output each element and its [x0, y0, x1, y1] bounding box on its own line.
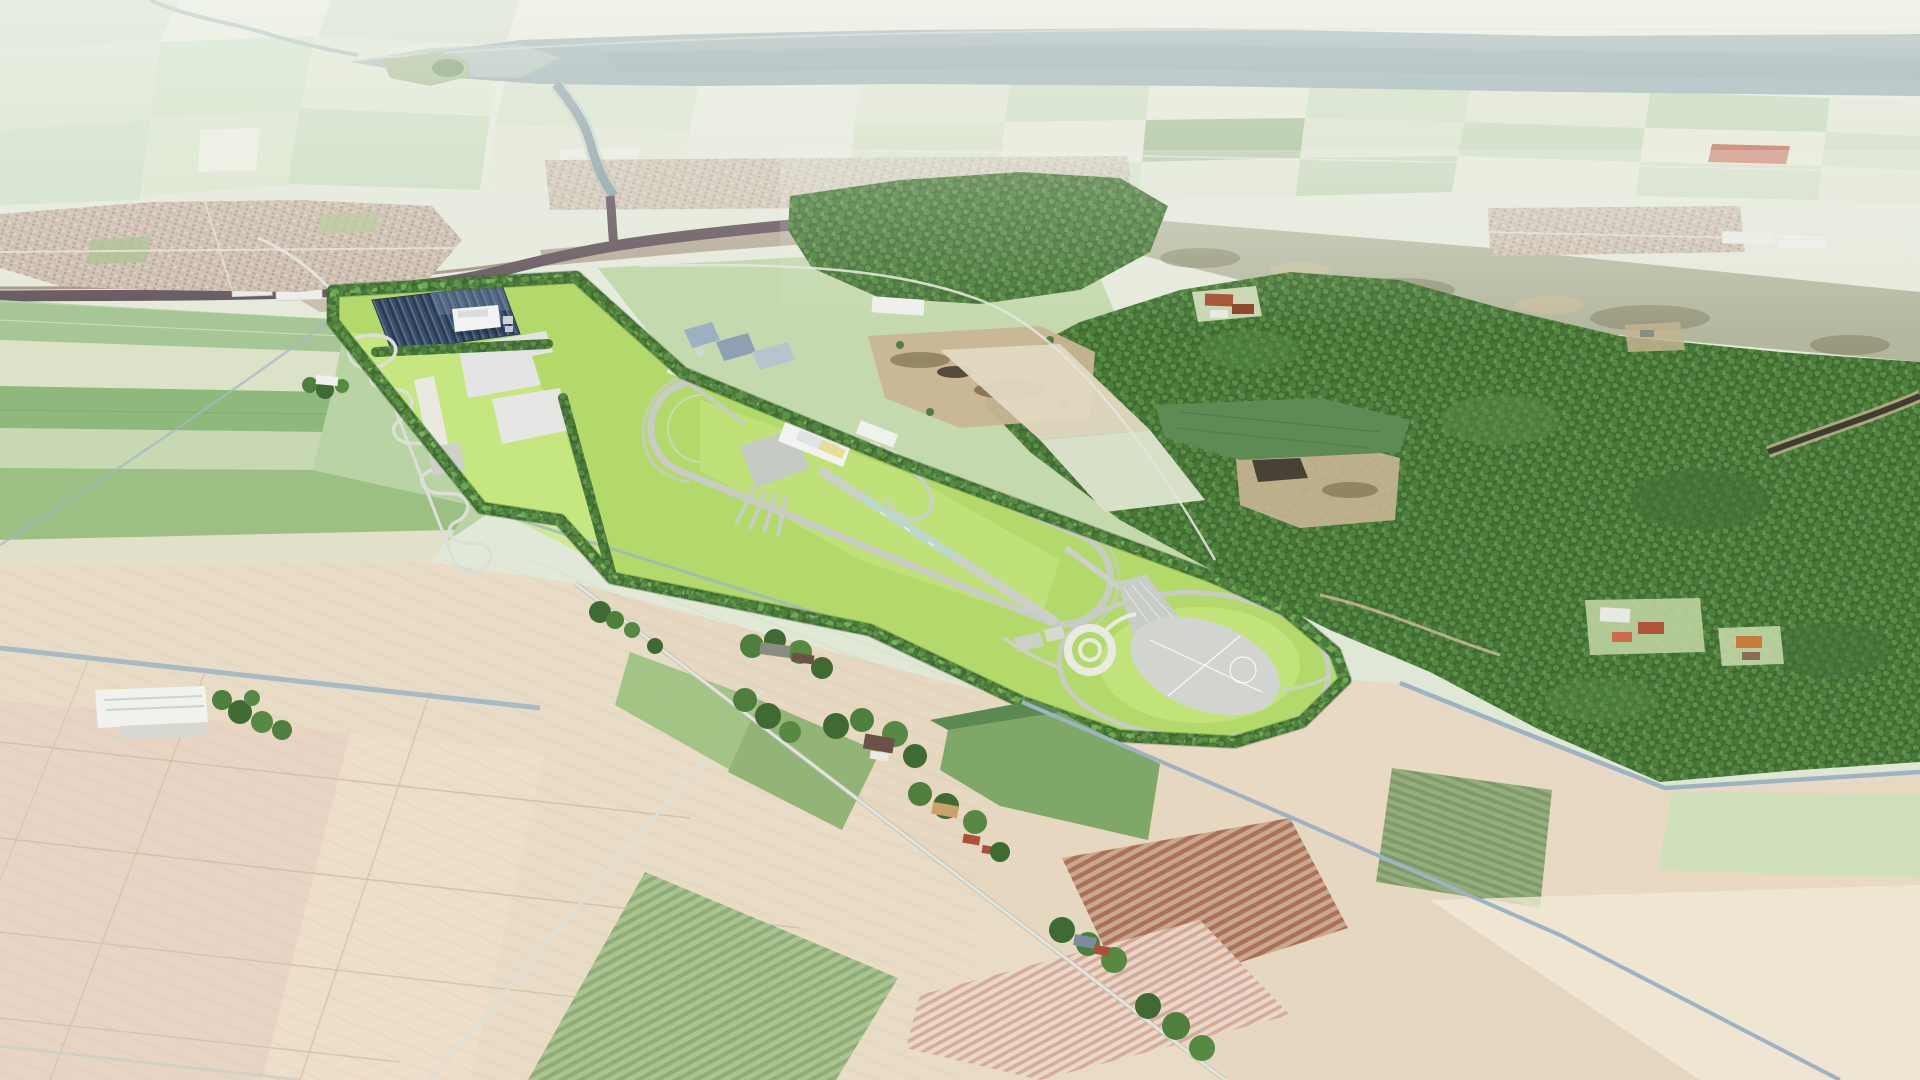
farm-shed [316, 375, 339, 386]
aerial-scene: Aerial artist impression of an elongated… [0, 0, 1920, 1080]
aerial-render-stage: Aerial artist impression of an elongated… [0, 0, 1920, 1080]
pale-green-field [1658, 792, 1920, 878]
clearing-pond [1252, 458, 1308, 482]
forest-farm [1718, 626, 1784, 666]
forest-farm [1585, 598, 1705, 655]
forest-haze [780, 150, 1920, 330]
